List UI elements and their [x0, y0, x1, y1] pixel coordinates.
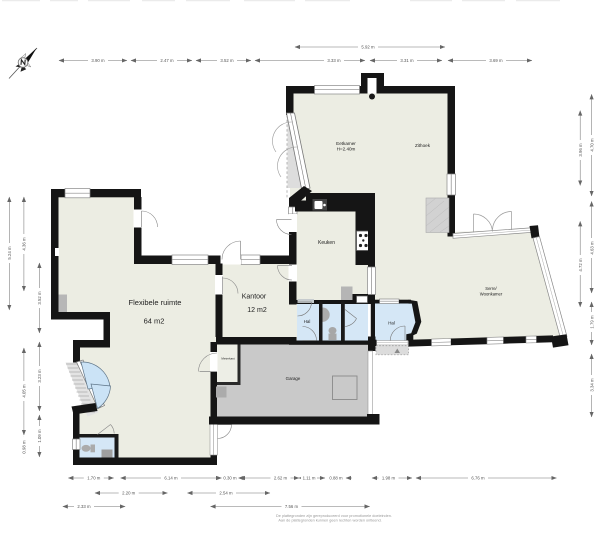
svg-text:1.98 m: 1.98 m	[382, 476, 396, 481]
svg-text:3.96 m: 3.96 m	[578, 143, 583, 157]
svg-text:12 m2: 12 m2	[247, 307, 267, 314]
svg-text:3.33 m: 3.33 m	[327, 58, 341, 63]
svg-text:4.63 m: 4.63 m	[589, 241, 594, 255]
svg-text:1.70 m: 1.70 m	[87, 476, 101, 481]
svg-text:5.24 m: 5.24 m	[7, 246, 12, 260]
svg-text:0.98 m: 0.98 m	[22, 440, 27, 454]
svg-text:3.52 m: 3.52 m	[37, 291, 42, 305]
svg-text:Hal: Hal	[304, 319, 311, 324]
svg-text:3.31 m: 3.31 m	[400, 58, 414, 63]
svg-text:1.09 m: 1.09 m	[37, 429, 42, 443]
svg-text:2.54 m: 2.54 m	[219, 491, 233, 496]
svg-text:3.69 m: 3.69 m	[489, 58, 503, 63]
svg-text:Serre/: Serre/	[485, 286, 497, 291]
svg-text:6.14 m: 6.14 m	[164, 476, 178, 481]
svg-text:3.23 m: 3.23 m	[37, 369, 42, 383]
svg-text:0.88 m: 0.88 m	[329, 476, 343, 481]
svg-text:3.34 m: 3.34 m	[589, 378, 594, 392]
svg-text:5.92 m: 5.92 m	[361, 45, 375, 50]
svg-text:6.76 m: 6.76 m	[471, 476, 485, 481]
svg-text:H=2.40m: H=2.40m	[337, 147, 356, 152]
svg-text:Hal: Hal	[388, 321, 395, 326]
svg-text:4.05 m: 4.05 m	[22, 384, 27, 398]
svg-text:2.20 m: 2.20 m	[122, 491, 136, 496]
svg-text:Flexibele ruimte: Flexibele ruimte	[129, 298, 182, 307]
svg-text:3.52 m: 3.52 m	[220, 58, 234, 63]
svg-text:Woonkamer: Woonkamer	[480, 291, 503, 296]
svg-text:3.90 m: 3.90 m	[91, 58, 105, 63]
svg-text:Zithoek: Zithoek	[415, 143, 431, 148]
svg-text:De plattegronden zijn gereprod: De plattegronden zijn gereproduceerd voo…	[276, 514, 392, 518]
svg-text:64 m2: 64 m2	[144, 317, 165, 326]
svg-text:2.33 m: 2.33 m	[77, 504, 91, 509]
svg-text:4.72 m: 4.72 m	[578, 258, 583, 272]
svg-text:Eetkamer: Eetkamer	[336, 141, 356, 146]
svg-text:1.79 m: 1.79 m	[589, 315, 594, 329]
svg-text:Meterkast: Meterkast	[221, 357, 234, 361]
svg-text:1.11 m: 1.11 m	[303, 476, 316, 481]
svg-text:Aan de plattegronden kunnen ge: Aan de plattegronden kunnen geen rechten…	[278, 519, 381, 523]
svg-text:0.30 m: 0.30 m	[223, 476, 237, 481]
svg-text:Kantoor: Kantoor	[242, 294, 267, 301]
svg-text:4.36 m: 4.36 m	[22, 237, 27, 251]
svg-text:Keuken: Keuken	[318, 240, 335, 246]
svg-text:7.56 m: 7.56 m	[285, 504, 299, 509]
svg-text:2.47 m: 2.47 m	[160, 58, 174, 63]
svg-text:4.70 m: 4.70 m	[589, 138, 594, 152]
svg-text:2.62 m: 2.62 m	[274, 476, 288, 481]
svg-text:Garage: Garage	[286, 376, 301, 381]
